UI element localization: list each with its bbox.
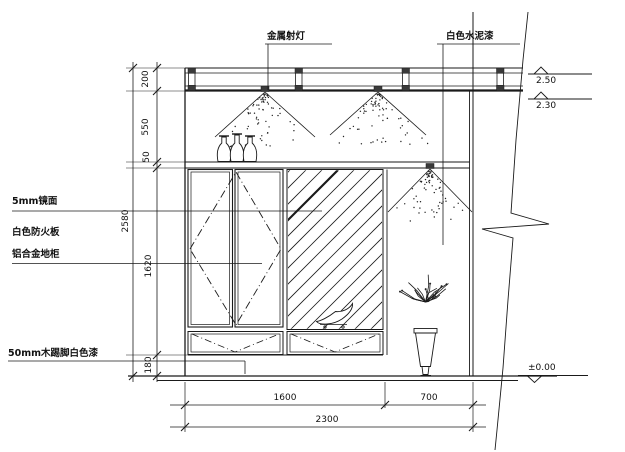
dim-track-200: 200 bbox=[140, 57, 152, 101]
dim-total-2580: 2580 bbox=[120, 199, 132, 243]
base-drawers bbox=[188, 332, 383, 355]
plant-foliage bbox=[399, 275, 449, 302]
dim-width-700: 700 bbox=[407, 392, 451, 404]
dim-base-180: 180 bbox=[143, 343, 155, 387]
cabinet-doors bbox=[188, 170, 283, 328]
level-2-50: 2.50 bbox=[536, 76, 556, 86]
label-white-fire-board: 白色防火板 bbox=[12, 227, 60, 238]
label-5mm-mirror: 5mm镜面 bbox=[12, 196, 57, 207]
decor-sculpture bbox=[317, 304, 353, 329]
drawing-linework bbox=[0, 0, 625, 452]
level-marks bbox=[518, 67, 592, 383]
elevation-drawing: 金属射灯 白色水泥漆 5mm镜面 白色防火板 铝合金地柜 50mm木踢脚白色漆 … bbox=[0, 0, 625, 452]
label-metal-spotlight: 金属射灯 bbox=[267, 31, 305, 42]
label-white-cement-paint: 白色水泥漆 bbox=[446, 31, 494, 42]
dim-shelf-50: 50 bbox=[141, 135, 153, 179]
ceiling-lighting-track bbox=[185, 68, 523, 91]
level-0-00: ±0.00 bbox=[528, 363, 556, 373]
label-wood-skirting: 50mm木踢脚白色漆 bbox=[8, 348, 98, 359]
dim-body-1620: 1620 bbox=[143, 244, 155, 288]
dim-width-1600: 1600 bbox=[263, 392, 307, 404]
mirror-hatch bbox=[130, 170, 546, 330]
level-2-30: 2.30 bbox=[536, 101, 556, 111]
dim-width-2300: 2300 bbox=[305, 414, 349, 426]
decor-bottles bbox=[217, 134, 256, 162]
label-aluminium-cabinet: 铝合金地柜 bbox=[12, 249, 60, 260]
plant-vase bbox=[399, 275, 449, 376]
